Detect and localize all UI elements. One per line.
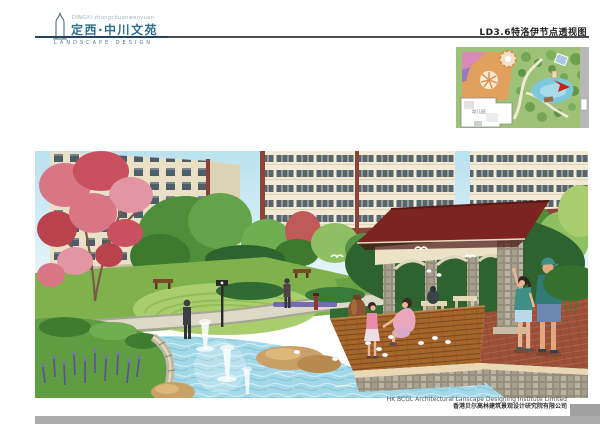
presentation-board: DINGXI·zhongchuanwenyuan 定西·中川文苑 LANDSCA… — [0, 0, 600, 424]
blue-flower-strip — [273, 302, 337, 307]
perspective-rendering — [35, 151, 588, 398]
footer-gray-bar — [35, 416, 600, 424]
site-plan-inset: 幼儿园 — [456, 47, 589, 128]
company-name-cn: 香港贝尔高林建筑景观设计研究院有限公司 — [387, 404, 567, 411]
inset-building-label: 幼儿园 — [472, 108, 486, 115]
inset-plaza — [462, 51, 516, 105]
inset-road-building — [581, 99, 587, 110]
sheet-title: LD3.6特洛伊节点透视图 — [479, 25, 587, 38]
landscape-design-label: LANDSCAPE DESIGN — [54, 40, 153, 46]
header-rule-accent — [35, 36, 167, 38]
inset-road — [580, 47, 589, 128]
seated-figure — [427, 290, 439, 304]
footer-credit: HK BCGL Architectural Lanscape Designing… — [387, 397, 567, 411]
